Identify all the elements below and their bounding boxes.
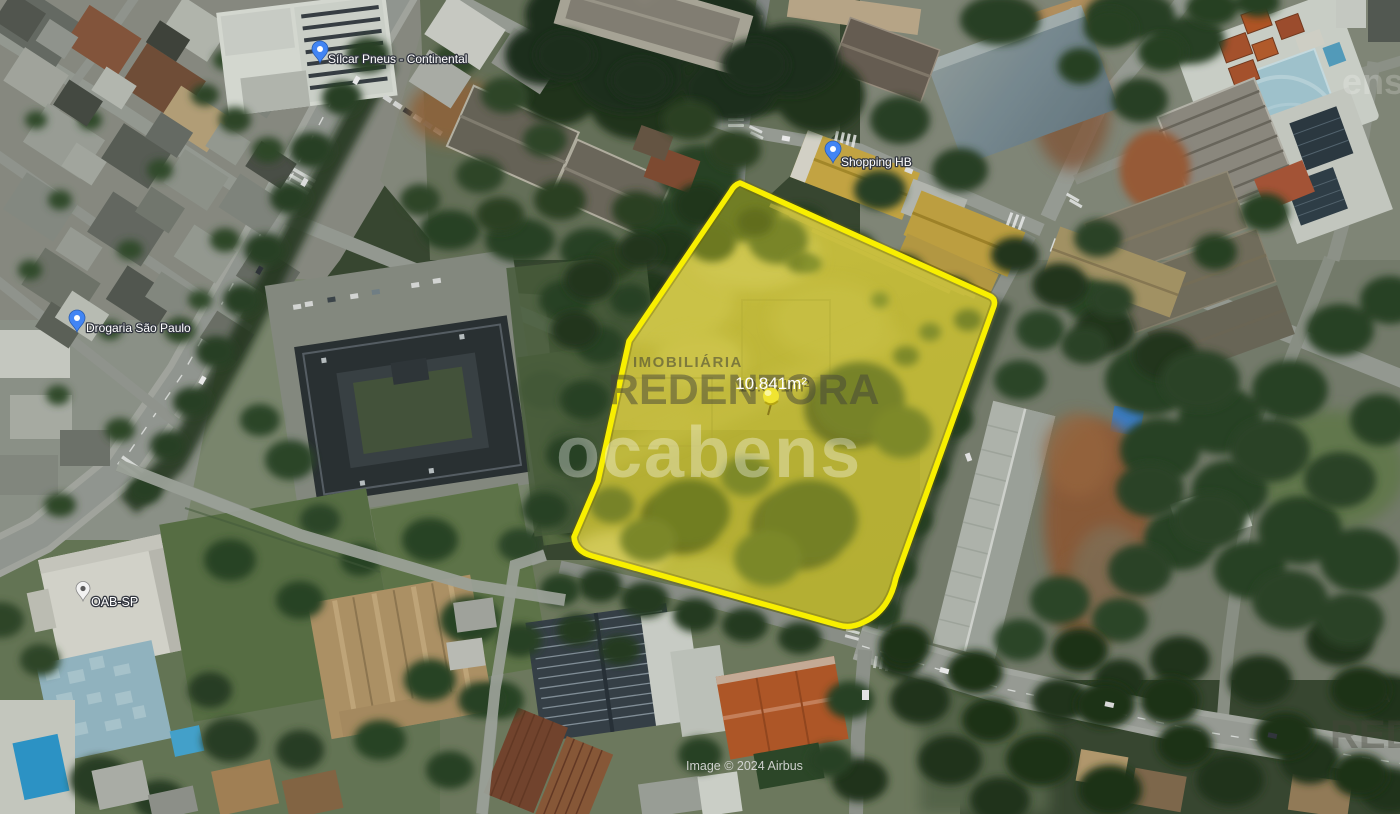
svg-text:Drogaria São Paulo: Drogaria São Paulo	[86, 321, 191, 335]
svg-text:Sílcar Pneus - Continental: Sílcar Pneus - Continental	[328, 52, 467, 66]
svg-text:REDE: REDE	[1330, 713, 1400, 757]
svg-text:OAB-SP: OAB-SP	[91, 595, 138, 609]
svg-text:ens: ens	[1342, 61, 1400, 102]
svg-text:ocabens: ocabens	[556, 413, 862, 493]
svg-text:Image © 2024 Airbus: Image © 2024 Airbus	[686, 759, 803, 773]
svg-text:Shopping HB: Shopping HB	[841, 155, 912, 169]
